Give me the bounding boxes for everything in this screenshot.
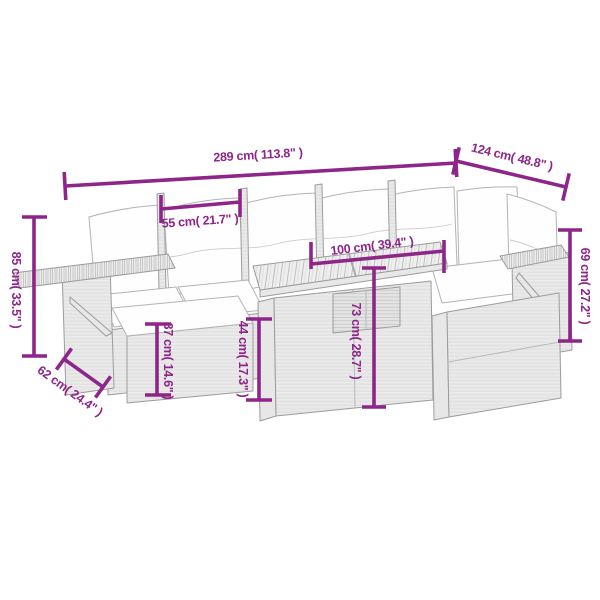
dimension-table-height-label: 73 cm( 28.7" )	[349, 303, 363, 380]
product-dimension-image: 289 cm( 113.8" ) 124 cm( 48.8" ) 85 cm( …	[0, 0, 600, 600]
dimension-back-height-label: 85 cm( 33.5" )	[9, 252, 23, 329]
dimension-total-width-label: 289 cm( 113.8" )	[213, 145, 303, 164]
right-box-front	[447, 293, 561, 417]
ottoman-box	[127, 323, 253, 403]
dimension-seat-height-label: 44 cm( 17.3" )	[236, 321, 250, 398]
dimension-ottoman-height-label: 37 cm( 14.6" )	[161, 323, 175, 400]
ottoman	[112, 296, 253, 403]
dimension-diagram-svg: 289 cm( 113.8" ) 124 cm( 48.8" ) 85 cm( …	[0, 0, 600, 600]
dimension-arm-height-label: 69 cm( 27.2" )	[578, 248, 592, 325]
right-box-side	[432, 312, 449, 420]
furniture-illustration	[13, 180, 572, 421]
